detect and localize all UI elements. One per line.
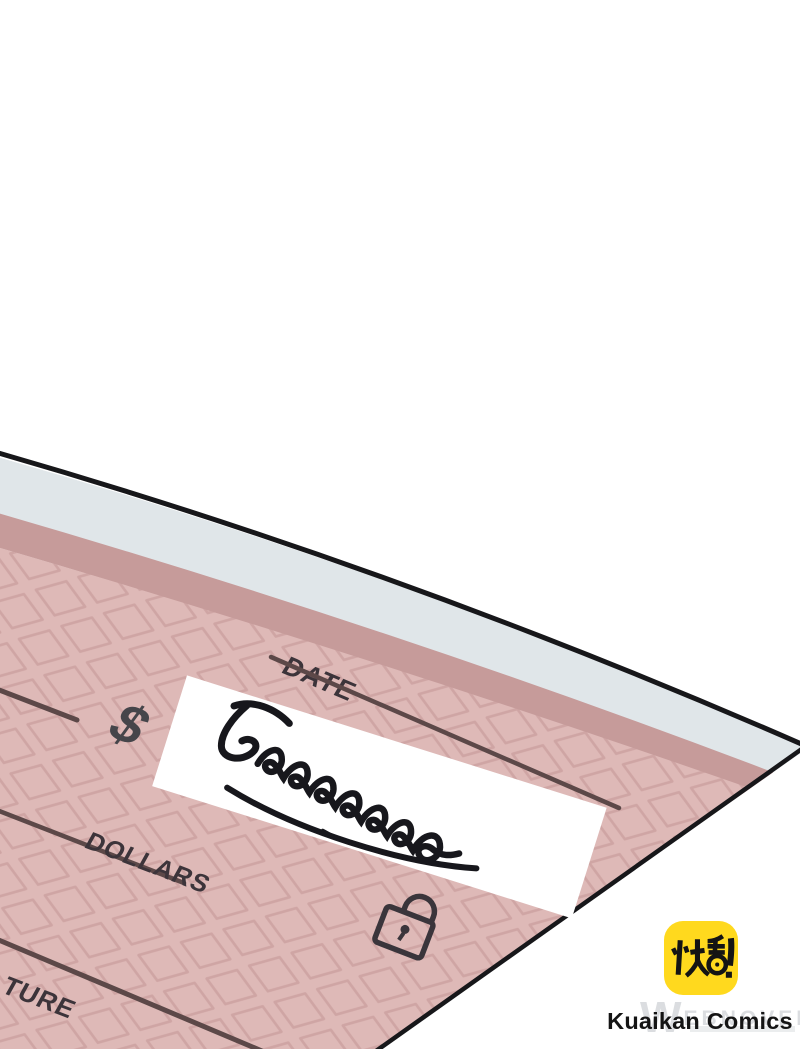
brand-name: Kuaikan Comics [600,1008,800,1035]
kuaikan-logo-icon [664,921,738,995]
comic-panel: DATE $ DOLLARS TURE WEBN [0,0,800,1049]
kuaikan-logo-glyphs [664,921,738,995]
check-illustration: DATE $ DOLLARS TURE [0,0,800,1049]
